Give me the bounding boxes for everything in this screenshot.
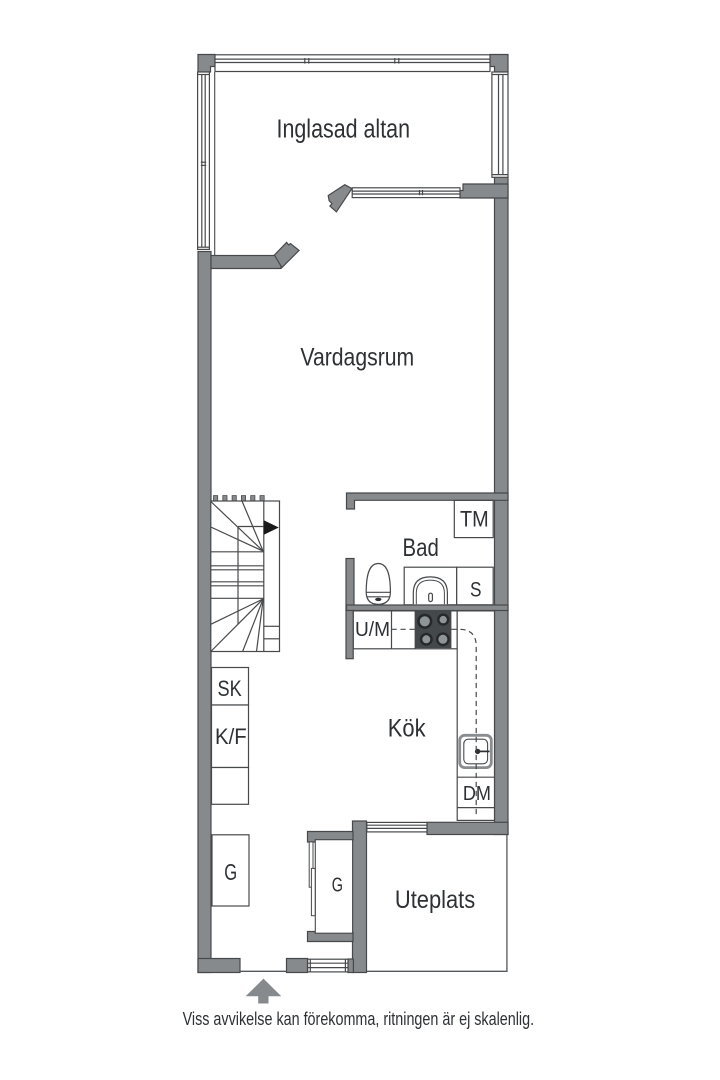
svg-text:G: G	[224, 859, 237, 885]
svg-text:K/F: K/F	[215, 724, 247, 749]
svg-text:U/M: U/M	[355, 618, 390, 641]
svg-text:Kök: Kök	[388, 714, 426, 742]
svg-text:Vardagsrum: Vardagsrum	[300, 344, 414, 372]
svg-text:SK: SK	[218, 676, 242, 701]
svg-text:S: S	[470, 577, 482, 601]
svg-text:TM: TM	[460, 506, 489, 531]
svg-text:Inglasad altan: Inglasad altan	[277, 115, 411, 143]
svg-text:G: G	[332, 874, 343, 897]
svg-text:Viss avvikelse kan förekomma,: Viss avvikelse kan förekomma, ritningen …	[183, 1008, 534, 1029]
svg-text:Bad: Bad	[403, 534, 439, 562]
svg-text:Uteplats: Uteplats	[395, 886, 475, 914]
svg-text:DM: DM	[463, 782, 491, 805]
